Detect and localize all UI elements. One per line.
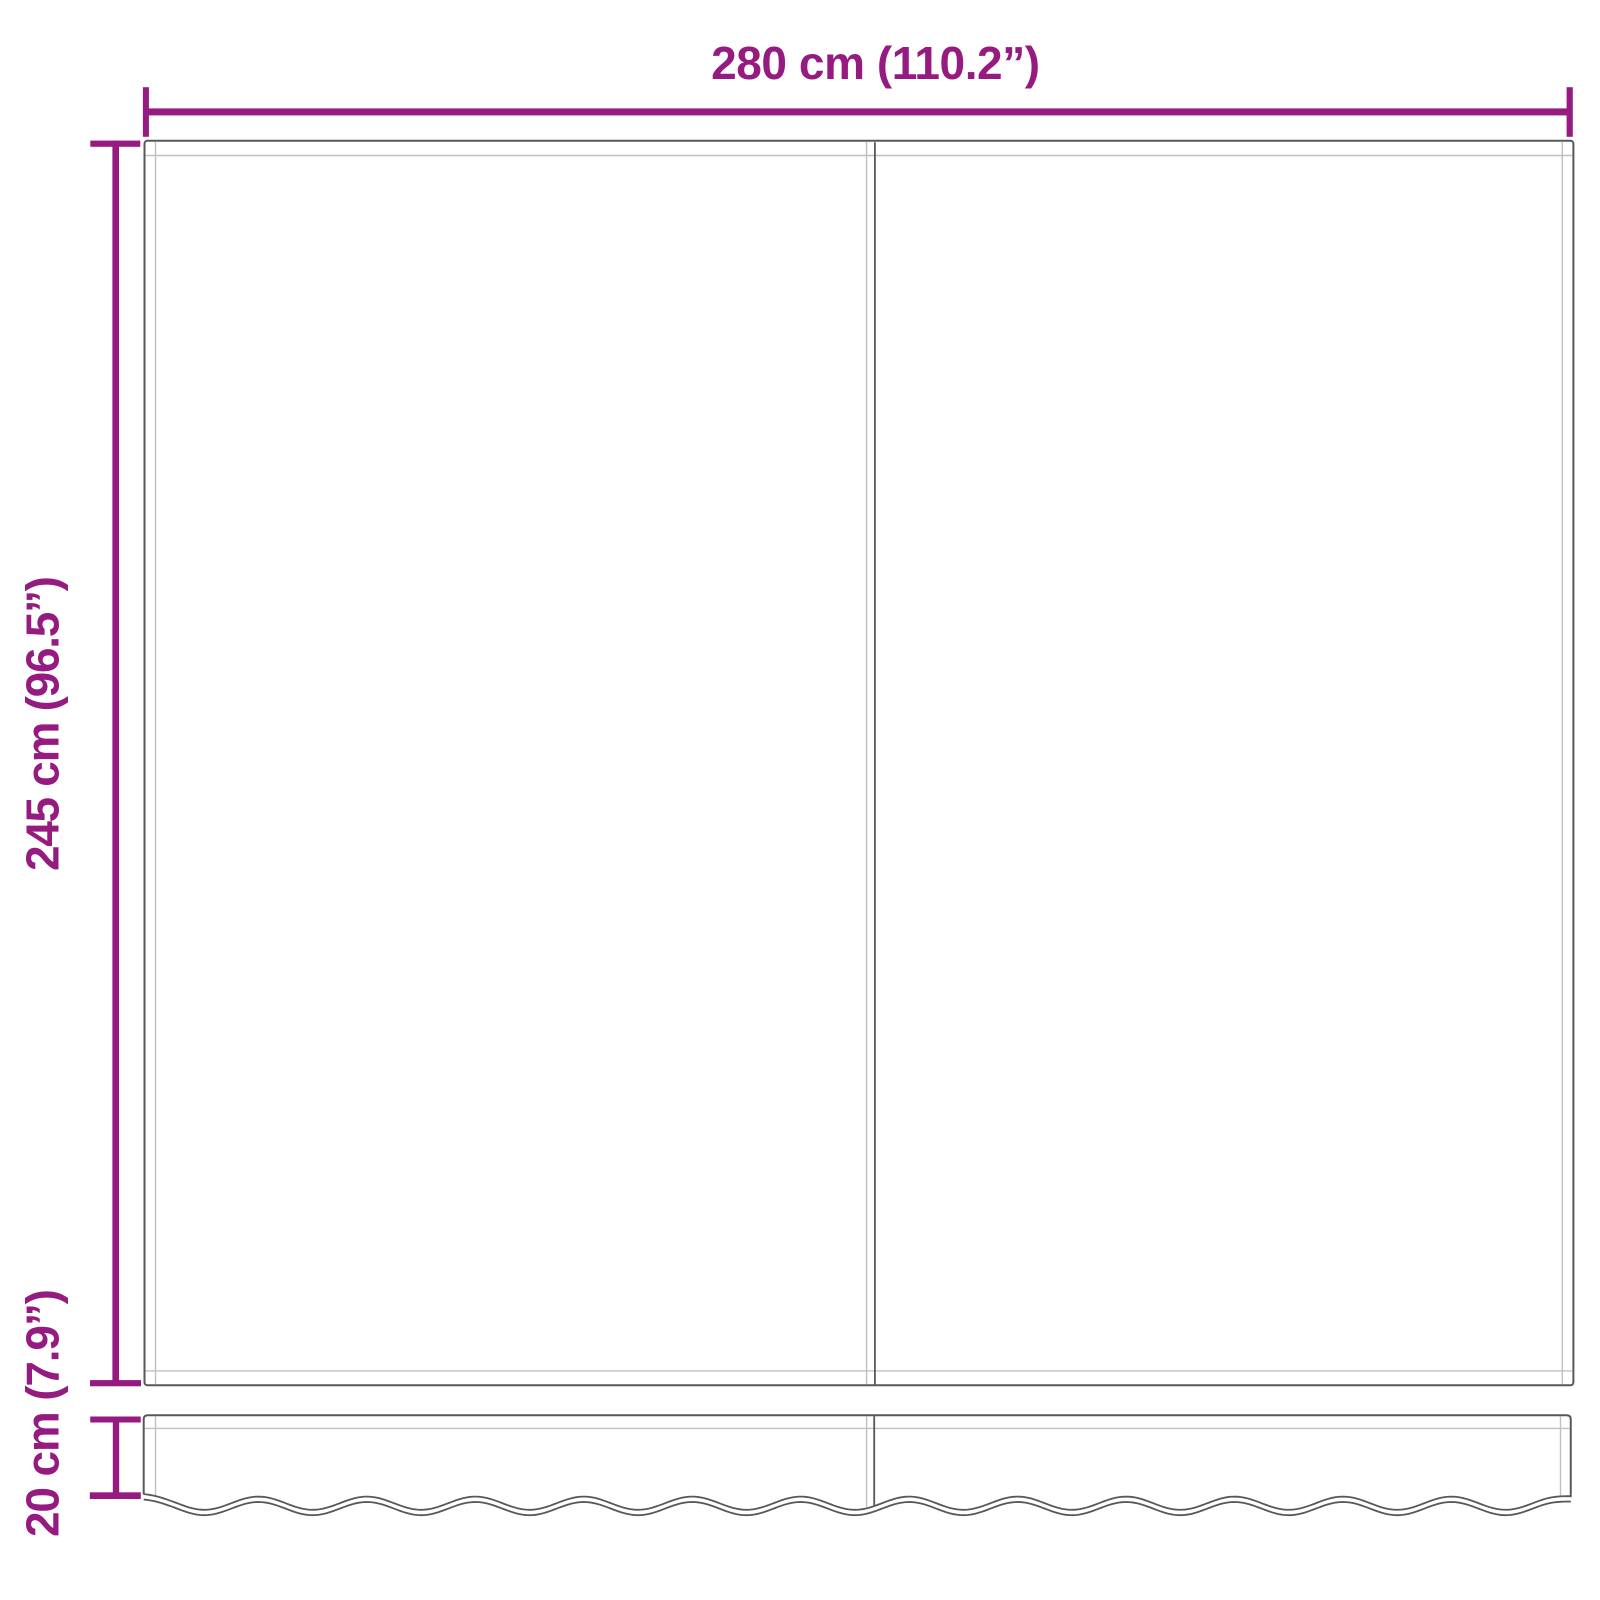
- svg-text:280 cm (110.2”): 280 cm (110.2”): [711, 37, 1040, 89]
- svg-text:245 cm (96.5”): 245 cm (96.5”): [16, 576, 68, 871]
- svg-text:20 cm (7.9”): 20 cm (7.9”): [16, 1289, 68, 1537]
